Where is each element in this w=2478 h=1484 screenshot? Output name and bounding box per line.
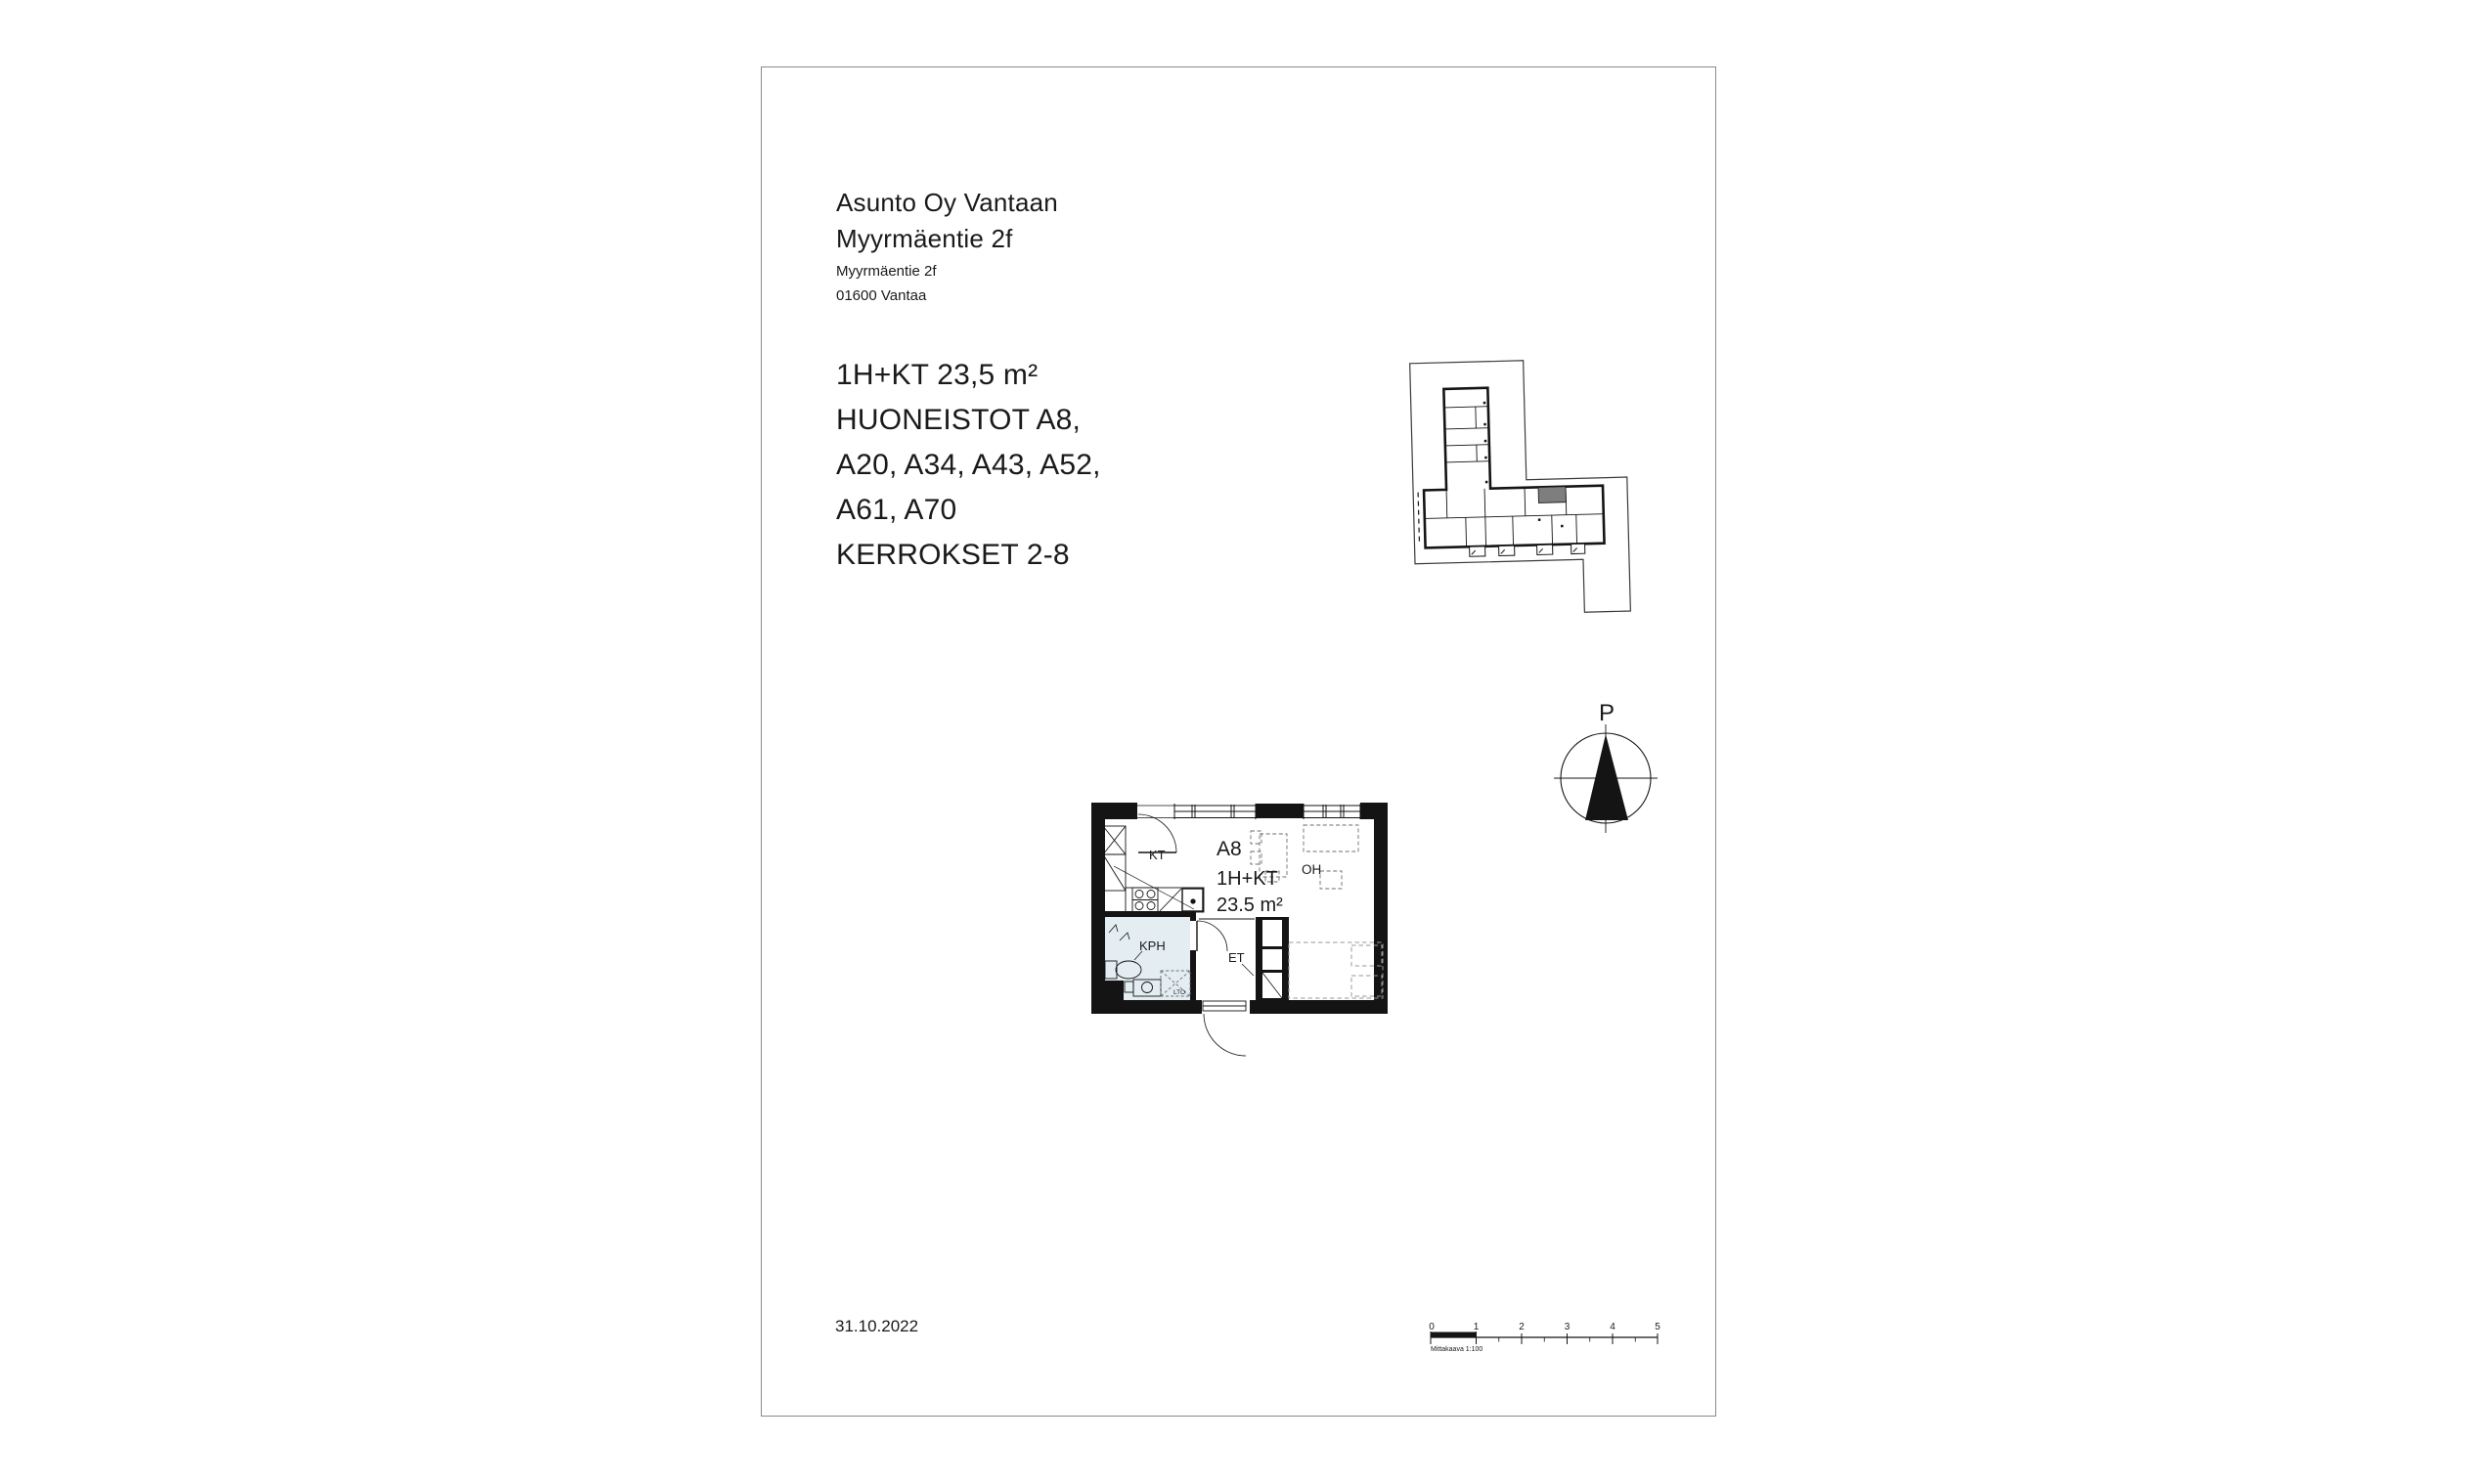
- window-right: [1304, 804, 1360, 819]
- apartment-units-2: A20, A34, A43, A52,: [836, 443, 1101, 488]
- room-label-living: OH: [1302, 862, 1321, 877]
- sofa: [1304, 825, 1358, 851]
- room-label-bathroom: KPH: [1139, 938, 1166, 953]
- room-label-entry: ET: [1228, 950, 1245, 965]
- bathroom-door: [1197, 921, 1227, 951]
- apartment-type-area: 1H+KT 23,5 m²: [836, 353, 1101, 398]
- stove: [1132, 888, 1158, 912]
- building-dashed-edge: [1418, 493, 1419, 544]
- svg-text:0: 0: [1429, 1322, 1435, 1332]
- scale-filled-segment: [1431, 1332, 1477, 1338]
- scale-numbers: 0 1 2 3 4 5: [1429, 1322, 1660, 1332]
- floor-plan-drawing: A8 1H+KT 23.5 m² KT OH KPH ET LTO: [1082, 793, 1409, 1081]
- scale-bar: 0 1 2 3 4 5 Mittakaava 1:100: [1424, 1309, 1668, 1356]
- address-street: Myyrmäentie 2f: [836, 261, 1058, 282]
- bed: [1289, 942, 1383, 998]
- north-triangle: [1585, 734, 1628, 820]
- apartment-floors: KERROKSET 2-8: [836, 533, 1101, 578]
- scale-label: Mittakaava 1:100: [1431, 1346, 1482, 1353]
- svg-text:4: 4: [1610, 1322, 1615, 1332]
- screenshot-canvas: { "header": { "company_line1": "Asunto O…: [0, 0, 2478, 1484]
- north-label: P: [1599, 700, 1615, 726]
- svg-text:1: 1: [1474, 1322, 1480, 1332]
- sink: [1182, 889, 1203, 911]
- kitchen-fixtures: [1103, 826, 1204, 912]
- unit-area-label: 23.5 m²: [1217, 895, 1283, 916]
- apartment-units-1: HUONEISTOT A8,: [836, 398, 1101, 443]
- room-label-kitchen: KT: [1149, 848, 1166, 862]
- apartment-info-block: 1H+KT 23,5 m² HUONEISTOT A8, A20, A34, A…: [836, 353, 1101, 578]
- key-plan-diagram: [1404, 351, 1636, 622]
- svg-text:3: 3: [1565, 1322, 1571, 1332]
- apartment-units-3: A61, A70: [836, 488, 1101, 533]
- svg-text:5: 5: [1655, 1322, 1660, 1332]
- unit-id-label: A8: [1217, 838, 1242, 860]
- company-name-line2: Myyrmäentie 2f: [836, 221, 1058, 257]
- document-page: Asunto Oy Vantaan Myyrmäentie 2f Myyrmäe…: [761, 66, 1716, 1417]
- coffee-table: [1320, 871, 1342, 889]
- title-block: Asunto Oy Vantaan Myyrmäentie 2f Myyrmäe…: [836, 185, 1058, 306]
- north-arrow-icon: P: [1551, 693, 1663, 834]
- svg-text:2: 2: [1519, 1322, 1525, 1332]
- unit-type-label: 1H+KT: [1217, 868, 1278, 890]
- address-city: 01600 Vantaa: [836, 285, 1058, 306]
- highlighted-unit: [1538, 487, 1566, 503]
- company-name-line1: Asunto Oy Vantaan: [836, 185, 1058, 221]
- entrance-door: [1203, 1001, 1246, 1056]
- kitchen-window-door: [1137, 806, 1176, 852]
- plan-date: 31.10.2022: [835, 1317, 918, 1336]
- room-label-closet: LTO: [1173, 989, 1185, 996]
- window-living: [1174, 804, 1256, 819]
